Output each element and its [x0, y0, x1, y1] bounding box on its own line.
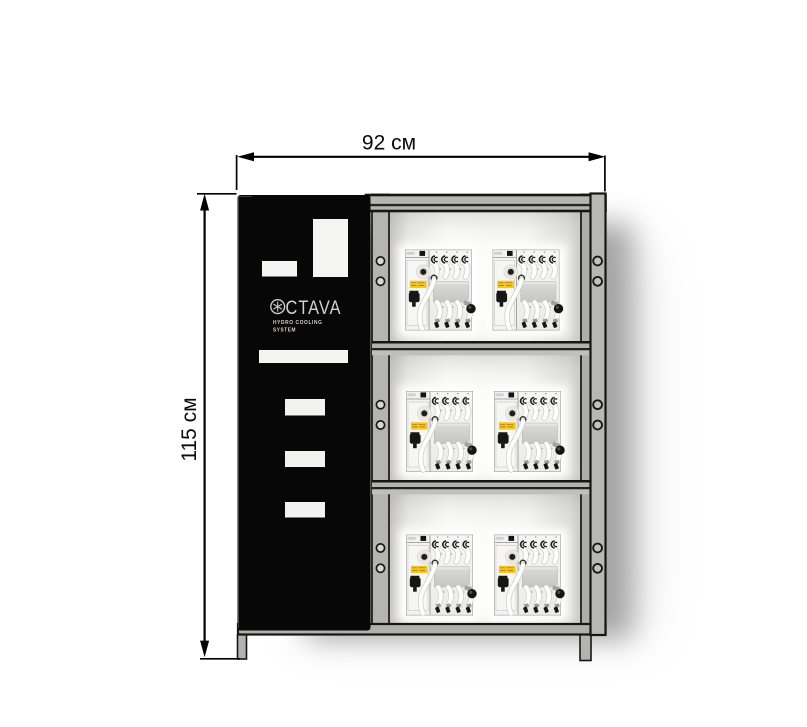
- svg-text:115 см: 115 см: [178, 397, 201, 461]
- svg-text:SYSTEM: SYSTEM: [273, 328, 296, 334]
- svg-text:CTAVA: CTAVA: [286, 298, 342, 319]
- svg-text:HYDRO COOLING: HYDRO COOLING: [273, 320, 323, 326]
- svg-text:92 см: 92 см: [362, 132, 416, 155]
